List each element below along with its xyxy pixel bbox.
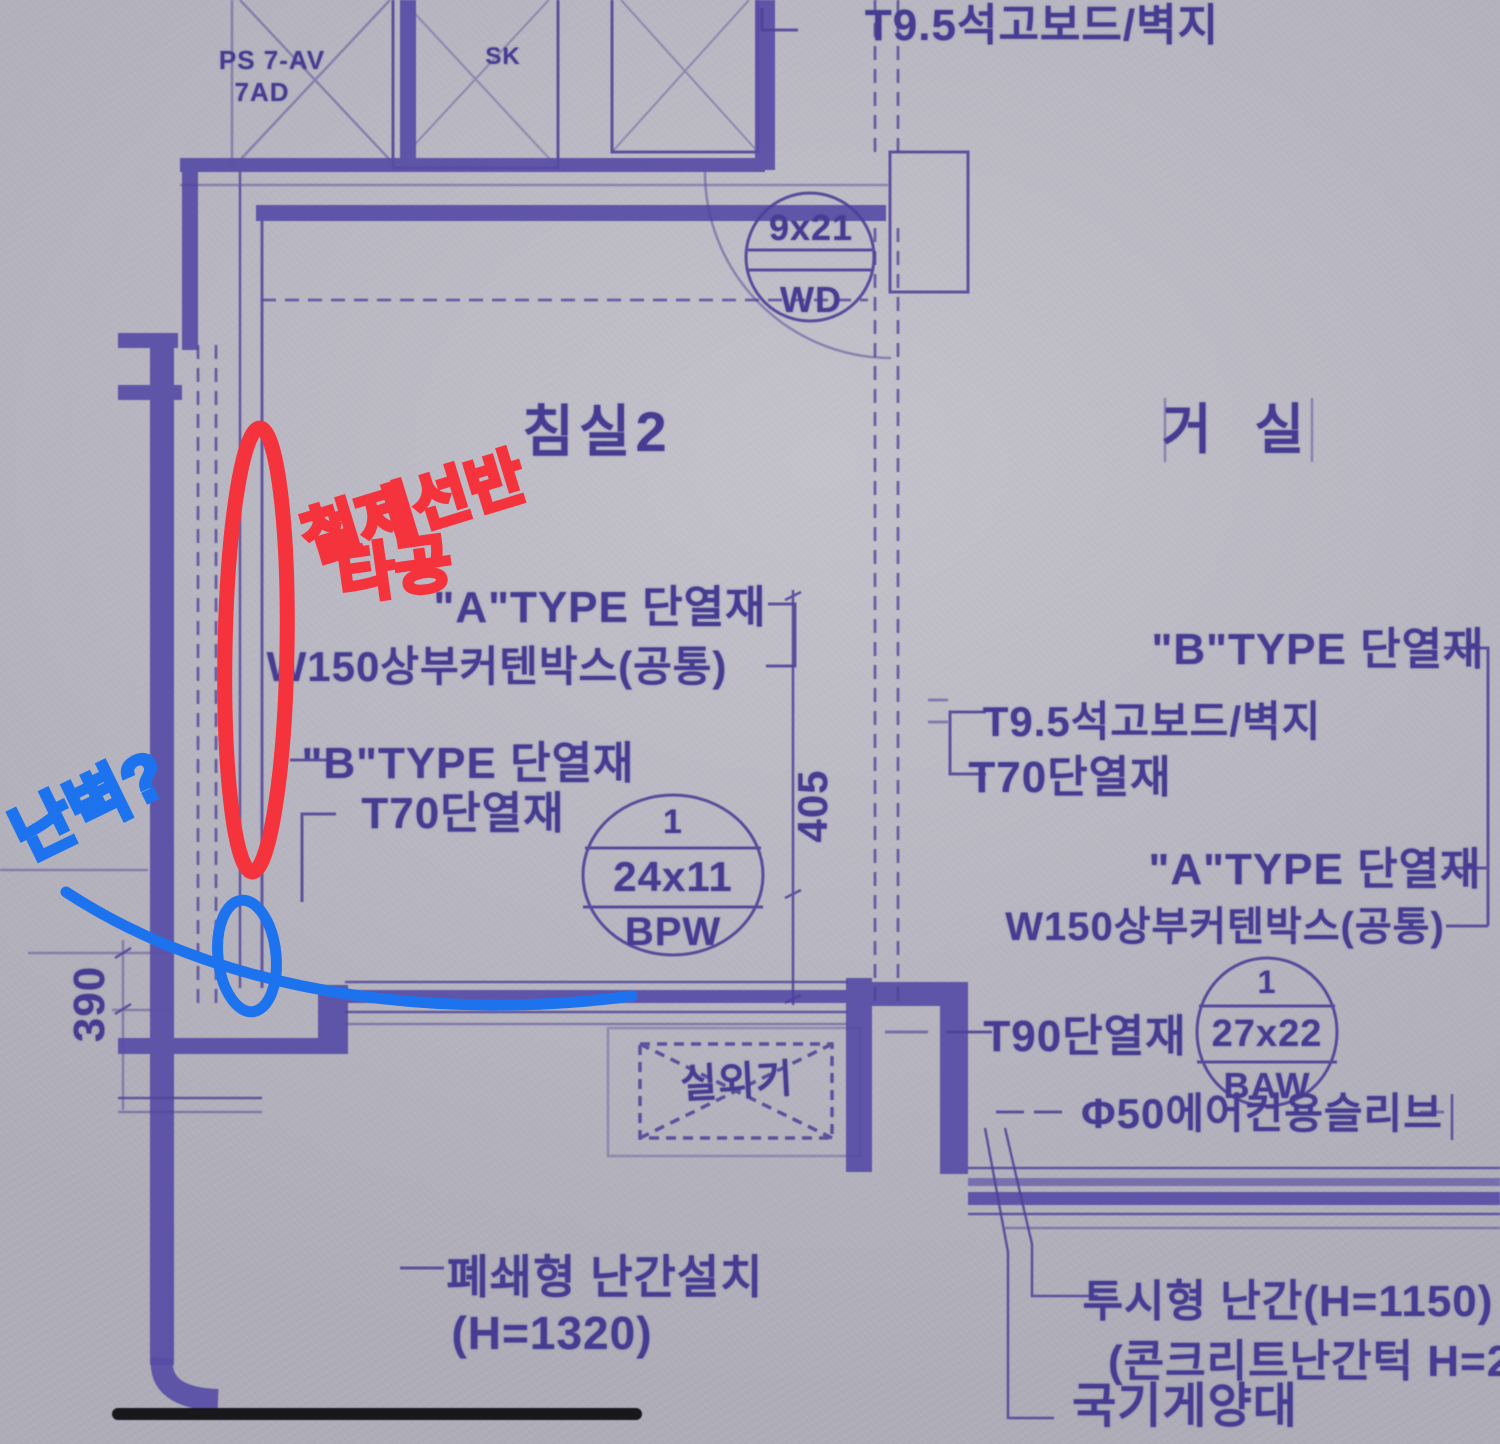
label-b-type-right: "B"TYPE 단열재 — [1151, 628, 1484, 672]
label-rail-closed-2: (H=1320) — [451, 1310, 652, 1356]
label-rail-open-2: (콘크리트난간턱 H=250 — [1108, 1340, 1500, 1384]
label-shaft-line1: PS 7-AV — [219, 47, 325, 73]
label-flagpole: 국기게양대 — [1072, 1383, 1298, 1431]
label-sk: SK — [485, 45, 520, 69]
label-ac-sleeve: Φ50에어컨용슬리브 — [1081, 1093, 1443, 1135]
label-t90: T90단열재 — [983, 1015, 1186, 1059]
tag-bpw-num: 1 — [663, 805, 683, 839]
label-a-type-right: "A"TYPE 단열재 — [1148, 848, 1481, 892]
tag-bpw-size: 24x11 — [613, 856, 732, 898]
label-a-type-left: "A"TYPE 단열재 — [433, 586, 766, 630]
blueprint-photo: T9.5석고보드/벽지 PS 7-AV 7AD SK 9x21 WD 침실2 거… — [0, 0, 1500, 1444]
printed-drawing-layer: T9.5석고보드/벽지 PS 7-AV 7AD SK 9x21 WD 침실2 거… — [0, 0, 1500, 1444]
dim-390: 390 — [68, 966, 112, 1042]
red-handwriting-line2: 타공 — [334, 532, 456, 609]
label-outdoor-unit: 실외기 — [679, 1059, 794, 1105]
tag-baw-num: 1 — [1258, 966, 1277, 998]
label-rail-open-1: 투시형 난간(H=1150) — [1083, 1280, 1494, 1324]
dim-405: 405 — [792, 769, 834, 842]
label-b-type-left: "B"TYPE 단열재 — [301, 742, 634, 786]
label-t70-left: T70단열재 — [361, 792, 564, 836]
label-t70-right: T70단열재 — [968, 756, 1171, 800]
tag-bpw-code: BPW — [625, 912, 721, 952]
room-label-living: 거 실 — [1162, 403, 1318, 457]
label-door-size: 9x21 — [769, 210, 853, 246]
label-curtain-right: W150상부커텐박스(공통) — [1005, 907, 1445, 947]
label-gypsum-top: T9.5석고보드/벽지 — [865, 4, 1219, 48]
label-rail-closed-1: 폐쇄형 난간설치 — [446, 1254, 763, 1300]
label-curtain-left: W150상부커텐박스(공통) — [267, 646, 728, 688]
bottom-black-bar — [112, 1408, 642, 1420]
label-door-code: WD — [780, 282, 842, 318]
tag-baw-size: 27x22 — [1212, 1015, 1323, 1053]
label-shaft-line2: 7AD — [234, 79, 289, 105]
room-label-bedroom2: 침실2 — [522, 404, 671, 460]
label-gypsum-right: T9.5석고보드/벽지 — [983, 701, 1322, 743]
